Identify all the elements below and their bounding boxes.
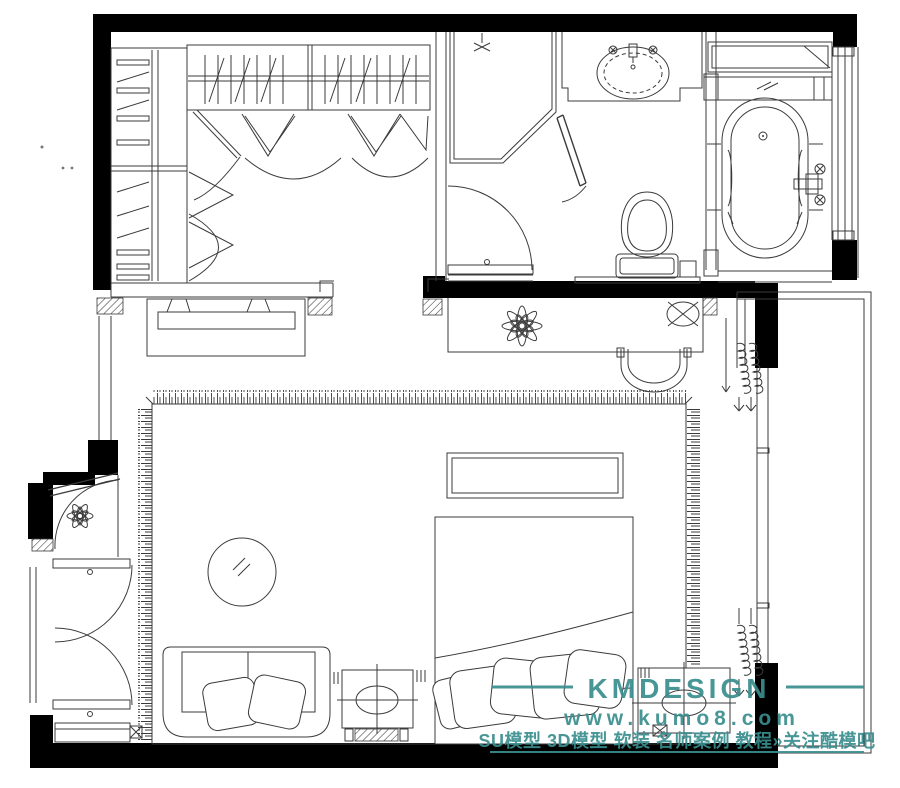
floor-plan-canvas: KMDESIGN www.kumo8.com SU模型 3D模型 软装 名师案例… xyxy=(0,0,900,788)
bed-bench-icon xyxy=(447,453,623,498)
wall-column-window-bottom xyxy=(832,240,857,280)
rug-fringe-right xyxy=(686,408,700,666)
watermark-brand: KMDESIGN xyxy=(588,673,771,704)
nightstand-mat xyxy=(355,729,398,741)
wall-left-step-v xyxy=(28,483,53,539)
rug-fringe-top xyxy=(152,390,686,404)
throw-pillow-icon xyxy=(247,673,308,731)
wall-bathroom-bottom xyxy=(423,281,755,298)
wall-left-upper xyxy=(93,14,111,290)
watermark-url: www.kumo8.com xyxy=(563,707,800,730)
wall-column-right-mid xyxy=(755,283,778,368)
sofa-group xyxy=(163,647,330,737)
wall-jamb-post xyxy=(423,276,445,284)
watermark-tagline: SU模型 3D模型 软装 名师案例 教程»关注酷模吧 xyxy=(478,730,875,751)
rug-fringe-left xyxy=(138,408,152,740)
wall-left-mid-block xyxy=(88,440,118,475)
wall-bottom-left-corner xyxy=(30,715,53,768)
floor-plan-drawing: KMDESIGN www.kumo8.com SU模型 3D模型 软装 名师案例… xyxy=(0,0,900,788)
